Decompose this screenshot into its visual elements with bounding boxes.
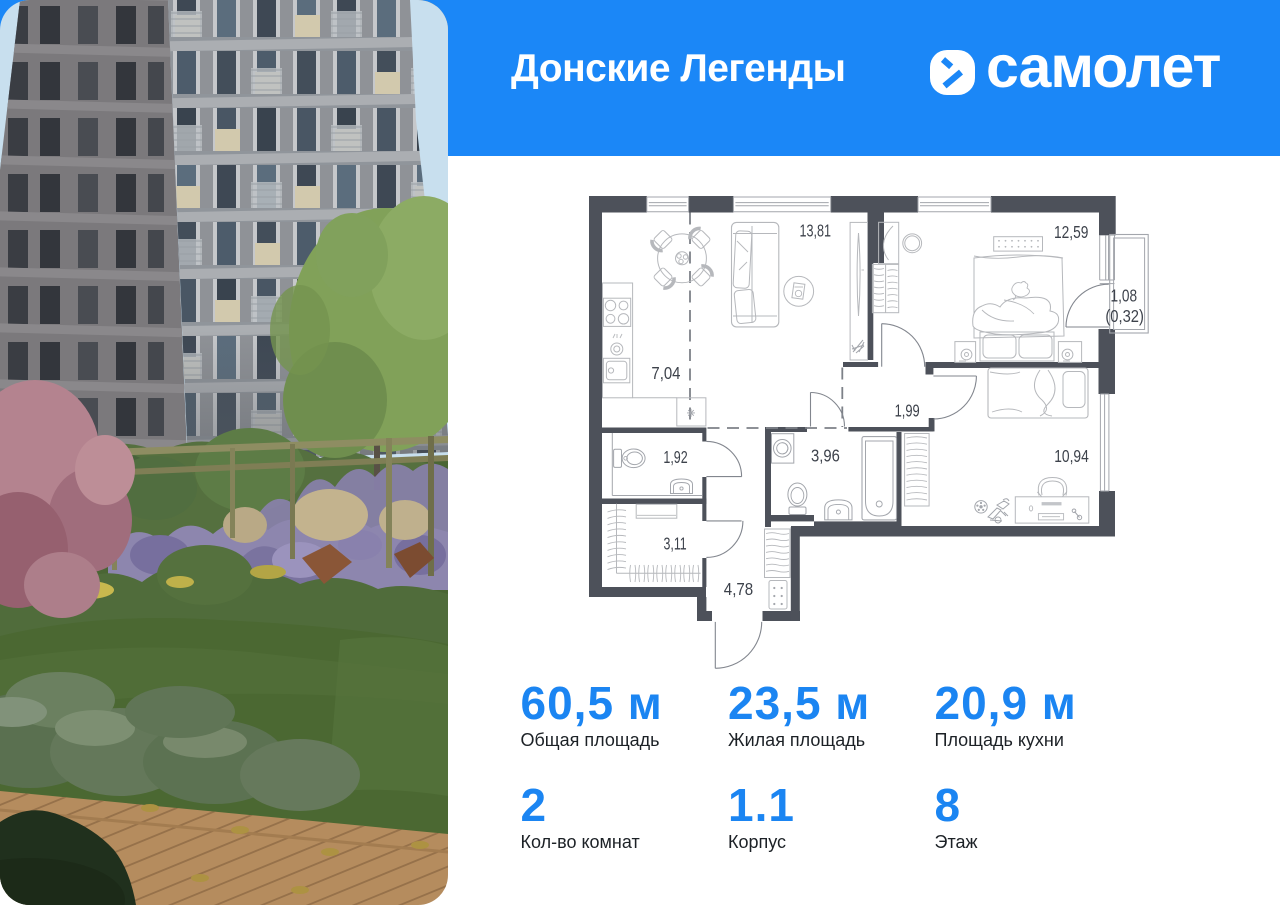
svg-text:1,99: 1,99 — [895, 400, 920, 420]
svg-text:7,04: 7,04 — [651, 363, 680, 383]
svg-text:13,81: 13,81 — [800, 221, 832, 241]
svg-text:4,78: 4,78 — [724, 579, 753, 599]
svg-text:3,96: 3,96 — [811, 446, 840, 466]
svg-text:12,59: 12,59 — [1054, 222, 1088, 242]
svg-text:10,94: 10,94 — [1054, 446, 1089, 466]
svg-text:3,11: 3,11 — [664, 534, 687, 554]
svg-text:(0,32): (0,32) — [1105, 306, 1144, 326]
svg-text:1,92: 1,92 — [663, 447, 687, 467]
svg-text:1,08: 1,08 — [1111, 285, 1138, 305]
